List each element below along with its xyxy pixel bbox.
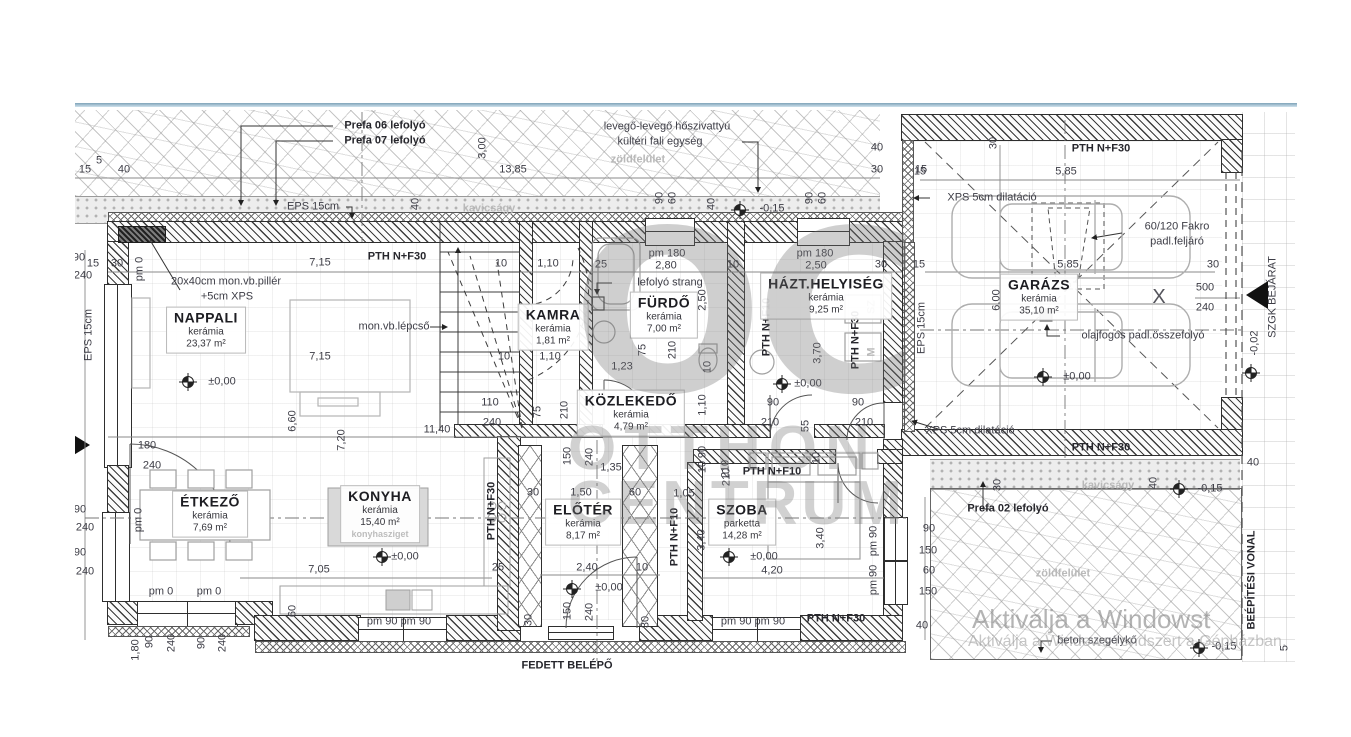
bottom-margin — [0, 669, 1351, 737]
dim-label: 30 — [1207, 260, 1219, 271]
dim-label: 60 — [629, 488, 641, 499]
dim-label: pm 0 — [135, 257, 146, 281]
dim-label: pm 90 — [869, 526, 880, 557]
dim-label: 75 — [533, 406, 544, 418]
level-marker — [373, 548, 391, 566]
level-marker — [720, 548, 738, 566]
dim-label: 60 — [668, 192, 679, 204]
dim-label: 2,50 — [698, 289, 709, 310]
dim-label: BEÉPÍTÉSI VONAL — [1247, 530, 1258, 629]
dim-label: 30 — [641, 616, 652, 628]
dim-label: zöldfelület — [611, 155, 665, 166]
room-label-hazt-helyiseg: HÁZT.HELYISÉGkerámia9,25 m² — [760, 273, 892, 320]
dim-label: XPS 5cm dilatáció — [925, 426, 1014, 437]
dim-label: 40 — [118, 165, 130, 176]
floor-plan-canvas: Prefa 06 lefolyóPrefa 07 lefolyólevegő-l… — [0, 0, 1351, 737]
dim-label: 40 — [1149, 477, 1160, 489]
dim-label: ±0,00 — [750, 552, 777, 563]
dim-label: kavicságy — [1082, 481, 1135, 492]
dim-label: 240 — [143, 461, 161, 472]
dim-label: 150 — [563, 602, 574, 620]
dim-label: pm 0 — [134, 508, 145, 532]
dim-label: 1,80 — [131, 639, 142, 660]
dim-label: pm 180 — [797, 249, 834, 260]
dim-label: 10 — [495, 259, 507, 270]
dim-label: 60/120 Fakro — [1145, 222, 1210, 233]
dim-label: 90 — [852, 398, 864, 409]
dim-label: PTH N+F30 — [487, 482, 498, 540]
dim-label: 25 — [492, 563, 504, 574]
dim-label: 30 — [993, 479, 1004, 491]
dim-label: M — [867, 347, 878, 356]
dim-label: beton szegélykő — [1057, 636, 1137, 647]
dim-label: 500 — [1196, 283, 1214, 294]
level-marker — [563, 580, 581, 598]
dim-label: -0,15 — [759, 204, 784, 215]
dim-label: 2,80 — [655, 261, 676, 272]
drawing-overlay — [0, 0, 1351, 737]
dim-label: PTH N+F30 — [851, 311, 862, 369]
room-label-kozlekedo: KÖZLEKEDŐkerámia4,79 m² — [577, 390, 685, 437]
dim-label: 90 — [923, 524, 935, 535]
dim-label: 1,10 — [537, 259, 558, 270]
dim-label: 15 — [79, 165, 91, 176]
dim-label: 4,20 — [761, 566, 782, 577]
room-label-furdo: FÜRDŐkerámia7,00 m² — [630, 292, 698, 339]
dim-label: 7,05 — [308, 565, 329, 576]
dim-label: pm 90 pm 90 — [721, 617, 785, 628]
dim-label: 2,40 — [576, 563, 597, 574]
dim-label: 240 — [167, 634, 178, 652]
room-label-konyha: KONYHAkerámia15,40 m²konyhasziget — [340, 485, 420, 543]
dim-label: levegő-levegő hőszivattyú — [604, 122, 731, 133]
garage-door-opening — [1226, 172, 1236, 398]
dim-label: 240 — [1196, 303, 1214, 314]
dim-label: PTH N+F30 — [1072, 443, 1130, 454]
dim-label: 60 — [288, 605, 299, 617]
room-label-eloter: ELŐTÉRkerámia8,17 m² — [545, 499, 621, 546]
level-marker — [1242, 364, 1260, 382]
dim-label: 60 — [923, 566, 935, 577]
dim-label: 210 — [855, 418, 873, 429]
dim-label: 13,85 — [499, 165, 527, 176]
dim-label: EPS 15cm — [287, 202, 339, 213]
dim-label: padl.feljáró — [1150, 237, 1204, 248]
dim-label: ±0,00 — [208, 377, 235, 388]
dim-label: 240 — [74, 271, 92, 282]
dim-label: 5,85 — [1055, 167, 1076, 178]
room-label-kamra: KAMRAkerámia1,81 m² — [518, 304, 589, 351]
dim-label: 20x40cm mon.vb.pillér — [171, 277, 281, 288]
dim-label: 30 — [524, 614, 535, 626]
level-marker — [1170, 480, 1188, 498]
dim-label: 5 — [1280, 645, 1291, 651]
dim-label: SZGK BEJÁRAT — [1268, 256, 1279, 338]
dim-label: 90 — [74, 505, 86, 516]
dim-label: 60 — [818, 192, 829, 204]
level-marker — [1034, 368, 1052, 386]
dim-label: 30 — [111, 259, 123, 270]
dim-label: 30 — [871, 165, 883, 176]
dim-label: pm 90 pm 90 — [367, 617, 431, 628]
dim-label: 5,85 — [1057, 260, 1078, 271]
dim-label: 40 — [707, 198, 718, 210]
dim-label: 150 — [563, 447, 574, 465]
dim-label: 240 — [218, 634, 229, 652]
dim-label: Prefa 07 lefolyó — [344, 136, 425, 147]
dim-label: zöldfelület — [1036, 569, 1090, 580]
dim-label: 1,50 — [570, 488, 591, 499]
dim-label: PTH N+F10 — [670, 508, 681, 566]
dim-label: 240 — [483, 418, 501, 429]
dim-label: 55 — [801, 420, 812, 432]
right-margin — [1297, 0, 1351, 737]
dim-label: 6,60 — [288, 410, 299, 431]
dim-label: 7,15 — [309, 258, 330, 269]
dim-label: kültéri fali egység — [618, 137, 703, 148]
dim-label: kavicságy — [463, 204, 516, 215]
dim-label: PTH N+F30 — [368, 252, 426, 263]
dim-label: 40 — [411, 198, 422, 210]
dim-label: 90 — [74, 548, 86, 559]
dim-label: EPS 15cm — [84, 309, 95, 361]
dim-label: 210 — [721, 460, 732, 478]
dim-label: -0,15 — [1197, 484, 1222, 495]
dim-label: 10 — [698, 461, 709, 473]
room-label-nappali: NAPPALIkerámia23,37 m² — [166, 307, 246, 354]
dim-label: 15 — [913, 260, 925, 271]
dim-label: ±0,00 — [391, 552, 418, 563]
dim-label: Prefa 02 lefolyó — [967, 504, 1048, 515]
dim-label: 90 — [767, 398, 779, 409]
dim-label: 210 — [668, 341, 679, 359]
dim-label: lefolyó strang — [637, 278, 702, 289]
dim-label: +5cm XPS — [201, 292, 253, 303]
dim-label: 240 — [585, 603, 596, 621]
dim-label: 240 — [76, 523, 94, 534]
dim-label: 15 — [87, 259, 99, 270]
dim-label: 150 — [919, 587, 937, 598]
dim-label: pm 180 — [649, 249, 686, 260]
dim-label: 110 — [481, 398, 499, 409]
level-marker — [1190, 639, 1208, 657]
dim-label: X — [1152, 287, 1165, 307]
dim-label: 10 — [727, 260, 739, 271]
dim-label: 1,10 — [698, 394, 709, 415]
dim-label: 7,15 — [309, 352, 330, 363]
dim-label: -0,02 — [1250, 330, 1261, 355]
dim-label: 11,40 — [424, 425, 451, 436]
dim-label: 10 — [498, 352, 510, 363]
dim-label: 1,23 — [611, 362, 632, 373]
dim-label: 90 — [655, 192, 666, 204]
dim-label: 90 — [197, 637, 208, 649]
dim-label: PTH N+F30 — [807, 614, 865, 625]
dim-label: PTH N+F30 — [1072, 144, 1130, 155]
dim-label: 2,50 — [805, 261, 826, 272]
dim-label: 90 — [698, 446, 709, 458]
dim-label: 3,40 — [697, 529, 708, 550]
room-label-etkezo: ÉTKEZŐkerámia7,69 m² — [172, 491, 248, 538]
dim-label: pm 0 — [197, 587, 221, 598]
dim-label: ±0,00 — [1063, 372, 1090, 383]
dim-label: pm 90 — [869, 565, 880, 596]
dim-label: 90 — [805, 192, 816, 204]
room-label-szoba: SZOBAparketta14,28 m² — [708, 499, 776, 546]
dim-label: 1,10 — [539, 352, 560, 363]
dim-label: 240 — [585, 448, 596, 466]
dim-label: 150 — [919, 546, 937, 557]
dim-label: PTH N+F10 — [743, 467, 801, 478]
dim-label: mon.vb.lépcső — [359, 322, 430, 333]
dim-label: 30 — [527, 488, 539, 499]
level-marker — [179, 373, 197, 391]
dim-label: pm 0 — [149, 587, 173, 598]
dim-label: 240 — [76, 567, 94, 578]
dim-label: XPS 5cm dilatáció — [947, 193, 1036, 204]
dim-label: 7,20 — [337, 429, 348, 450]
dim-label: ±0,00 — [794, 379, 821, 390]
left-margin — [0, 0, 75, 737]
level-marker — [731, 201, 749, 219]
dim-label: 40 — [871, 143, 883, 154]
dim-label: 75 — [638, 344, 649, 356]
dim-label: 1,35 — [600, 463, 621, 474]
dim-label: 3,40 — [816, 527, 827, 548]
dim-label: 25 — [595, 260, 607, 271]
dim-label: 3,70 — [813, 342, 824, 363]
dim-label: olajfogós padl.összefolyó — [1082, 331, 1205, 342]
dim-label: 210 — [560, 401, 571, 419]
dim-label: Prefa 06 lefolyó — [344, 121, 425, 132]
dim-label: 10 — [812, 452, 823, 464]
dim-label: ±0,00 — [595, 583, 622, 594]
dim-label: 30 — [875, 260, 887, 271]
dim-label: 180 — [138, 441, 156, 452]
dim-label: 10 — [636, 563, 648, 574]
level-marker — [773, 375, 791, 393]
dim-label: EPS 15cm — [917, 302, 928, 354]
room-label-garazs: GARÁZSkerámia35,10 m² — [1000, 274, 1078, 321]
dim-label: 40 — [916, 621, 928, 632]
dim-label: 10 — [703, 361, 714, 373]
dim-label: 1,05 — [673, 489, 694, 500]
dim-label: 5 — [96, 156, 102, 167]
dim-label: 40 — [1247, 458, 1259, 469]
dim-label: 210 — [761, 418, 779, 429]
dim-label: 90 — [145, 636, 156, 648]
dim-label: 30 — [989, 137, 1000, 149]
dim-label: 3,00 — [478, 137, 489, 158]
dim-label: 15 — [914, 167, 926, 178]
dim-label: -0,15 — [1211, 642, 1236, 653]
